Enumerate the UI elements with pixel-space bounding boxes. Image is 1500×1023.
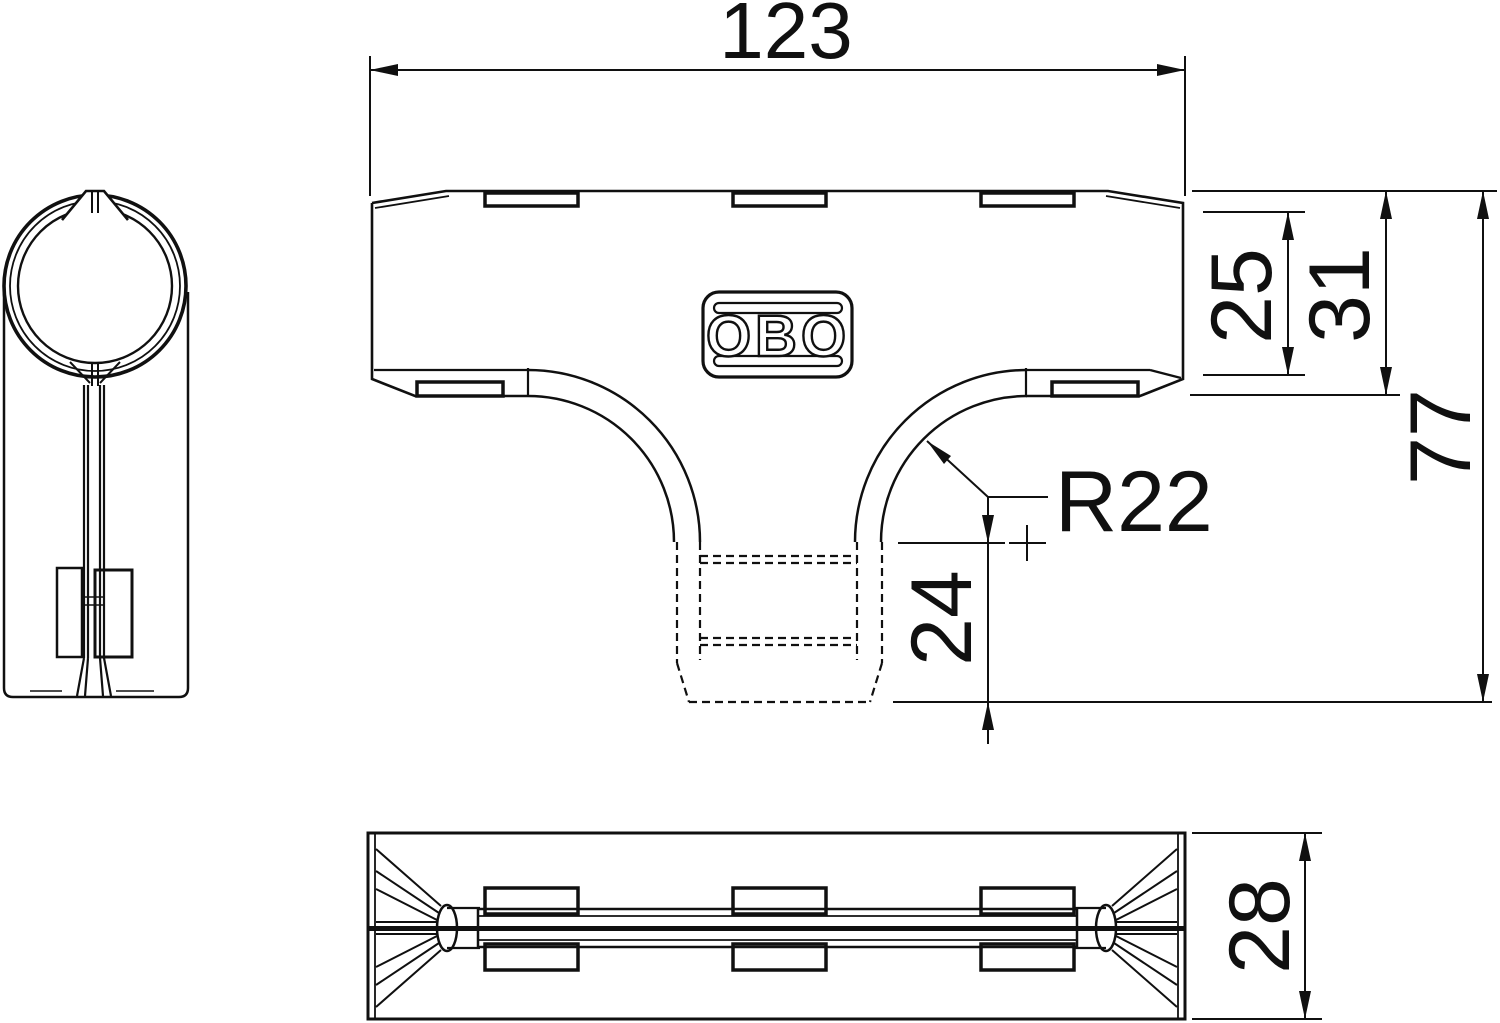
- side-view-mid-tube: [10, 201, 180, 371]
- dim-lid-height: 25: [1194, 212, 1305, 375]
- obo-logo-text: OBO: [706, 304, 850, 369]
- dim-arrow: [1477, 191, 1489, 219]
- dim-duct-depth: 28: [1192, 833, 1322, 1019]
- dim-label-duct-depth: 28: [1212, 878, 1308, 974]
- dim-label-branch-radius: R22: [1055, 454, 1213, 550]
- dim-branch-radius-leader: [927, 441, 1048, 497]
- dim-overall-width: 123: [370, 0, 1185, 196]
- front-view-bottom-tab-right: [1052, 382, 1138, 396]
- front-view-top-tab-left: [485, 193, 578, 206]
- side-view-stem-flare: [77, 658, 111, 696]
- dim-arrow: [1157, 64, 1185, 76]
- side-view-top-notch: [62, 191, 128, 220]
- technical-drawing-page: OBO 123: [0, 0, 1500, 1023]
- dim-arrow: [1282, 212, 1294, 240]
- dim-arrow: [1299, 833, 1311, 861]
- dim-label-total-height: 77: [1393, 389, 1489, 485]
- dim-label-body-height: 31: [1292, 247, 1388, 343]
- front-view-top-tab-right: [981, 193, 1074, 206]
- dim-arrow: [1282, 347, 1294, 375]
- dimensions: 123 25 31 77: [370, 0, 1497, 1019]
- dim-overall-width-extensions: [370, 56, 1185, 196]
- dim-arrow: [982, 515, 994, 543]
- dim-arrow: [1380, 367, 1392, 395]
- front-view-fillet-curves: [528, 370, 1027, 542]
- front-view: OBO: [372, 191, 1183, 702]
- front-view-bottom-tab-left: [417, 382, 503, 396]
- dim-arrow: [1477, 674, 1489, 702]
- dim-label-lid-height: 25: [1194, 248, 1290, 344]
- side-view: [4, 190, 188, 697]
- bottom-view-center-band: [368, 926, 1185, 931]
- side-view-inner-tube: [18, 209, 172, 363]
- dim-arrow: [1380, 191, 1392, 219]
- dim-total-height: 77: [1393, 191, 1489, 702]
- bottom-view: [368, 833, 1185, 1019]
- radius-center-mark: [1009, 525, 1046, 561]
- side-view-outer-tube: [4, 195, 186, 377]
- dim-label-overall-width: 123: [719, 0, 852, 75]
- dim-arrow: [370, 64, 398, 76]
- side-view-block-left: [57, 568, 82, 657]
- t-piece-engineering-drawing: OBO 123: [0, 0, 1500, 1023]
- dim-branch-radius: R22: [927, 441, 1213, 550]
- front-view-top-tab-center: [733, 193, 826, 206]
- dim-arrow: [1299, 991, 1311, 1019]
- obo-logo: OBO: [703, 292, 852, 377]
- dim-label-branch-depth: 24: [894, 570, 990, 666]
- front-view-hidden-stem: [677, 542, 882, 702]
- dim-arrow: [982, 702, 994, 730]
